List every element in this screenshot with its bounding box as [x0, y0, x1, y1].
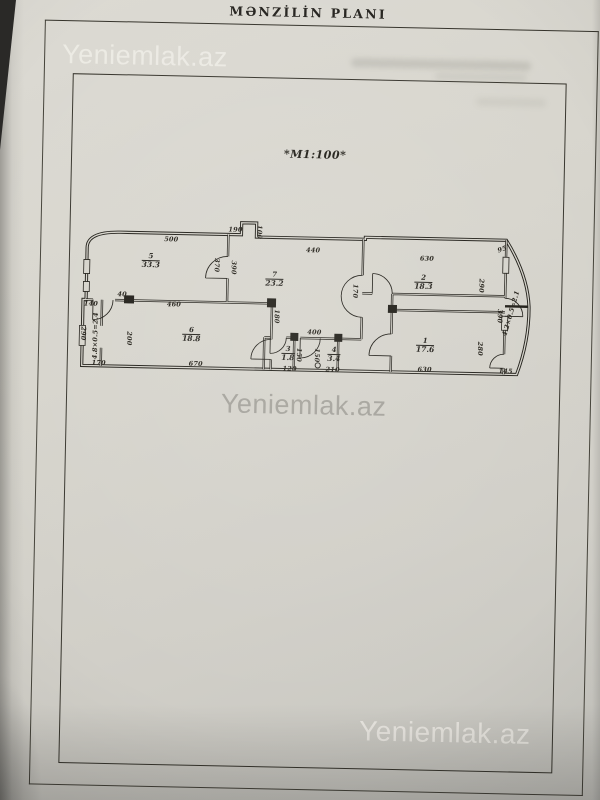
ink-bleed-smudge: [476, 98, 546, 107]
room-label: 218.3: [414, 274, 433, 292]
dimension-label: 145: [498, 367, 512, 375]
dimension-label: 200: [125, 331, 133, 345]
bottom-left-shadow: [0, 620, 60, 800]
scale-label: *M1:100*: [265, 147, 365, 162]
watermark-center: Yeniemlak.az: [221, 388, 387, 422]
watermark-bottom-right: Yeniemlak.az: [359, 715, 531, 751]
plan-labels-layer: 50019010044063095370390140404602904.8×0.…: [75, 207, 538, 387]
dimension-label: 370: [213, 258, 221, 272]
dimension-label: 390: [230, 260, 238, 274]
dimension-label: 40: [117, 290, 127, 298]
dimension-label: 120: [282, 365, 296, 373]
inner-border-frame: [58, 73, 566, 773]
watermark-top-left: Yeniemlak.az: [62, 39, 228, 73]
dimension-label: 150: [313, 348, 321, 362]
dimension-label: 190: [228, 225, 242, 233]
dimension-label: 500: [164, 235, 178, 243]
dimension-label: 180: [273, 309, 281, 323]
room-label: 117.6: [416, 337, 435, 355]
room-label: 43.4: [327, 346, 340, 364]
right-edge-shadow: [592, 0, 600, 800]
photographed-document: MƏNZİLİN PLANI Yeniemlak.az *M1:100*: [0, 0, 600, 800]
dimension-label: 4.8×0.5=2.4: [91, 312, 100, 359]
room-label: 723.2: [265, 271, 284, 289]
dimension-label: 670: [189, 360, 203, 368]
dimension-label: 460: [167, 300, 181, 308]
room-label: 618.8: [182, 326, 201, 344]
dimension-label: 170: [351, 284, 359, 298]
dimension-label: 400: [307, 328, 321, 336]
dimension-label: 210: [325, 366, 339, 374]
dimension-label: 150: [295, 348, 303, 362]
dimension-label: 290: [79, 326, 87, 340]
dimension-label: 95: [496, 244, 508, 255]
dimension-label: 280: [476, 342, 484, 356]
dimension-label: 170: [92, 359, 106, 367]
room-label: 533.3: [142, 252, 161, 270]
dimension-label: 440: [306, 246, 320, 254]
room-label: 31.8: [281, 345, 294, 363]
dimension-label: 140: [84, 299, 98, 307]
dimension-label: 390: [496, 309, 504, 323]
dimension-label: 100: [255, 225, 263, 239]
paper-sheet: MƏNZİLİN PLANI Yeniemlak.az *M1:100*: [0, 0, 600, 800]
dimension-label: 630: [420, 254, 434, 262]
dimension-label: 290: [477, 279, 485, 293]
dimension-label: 630: [417, 365, 431, 373]
